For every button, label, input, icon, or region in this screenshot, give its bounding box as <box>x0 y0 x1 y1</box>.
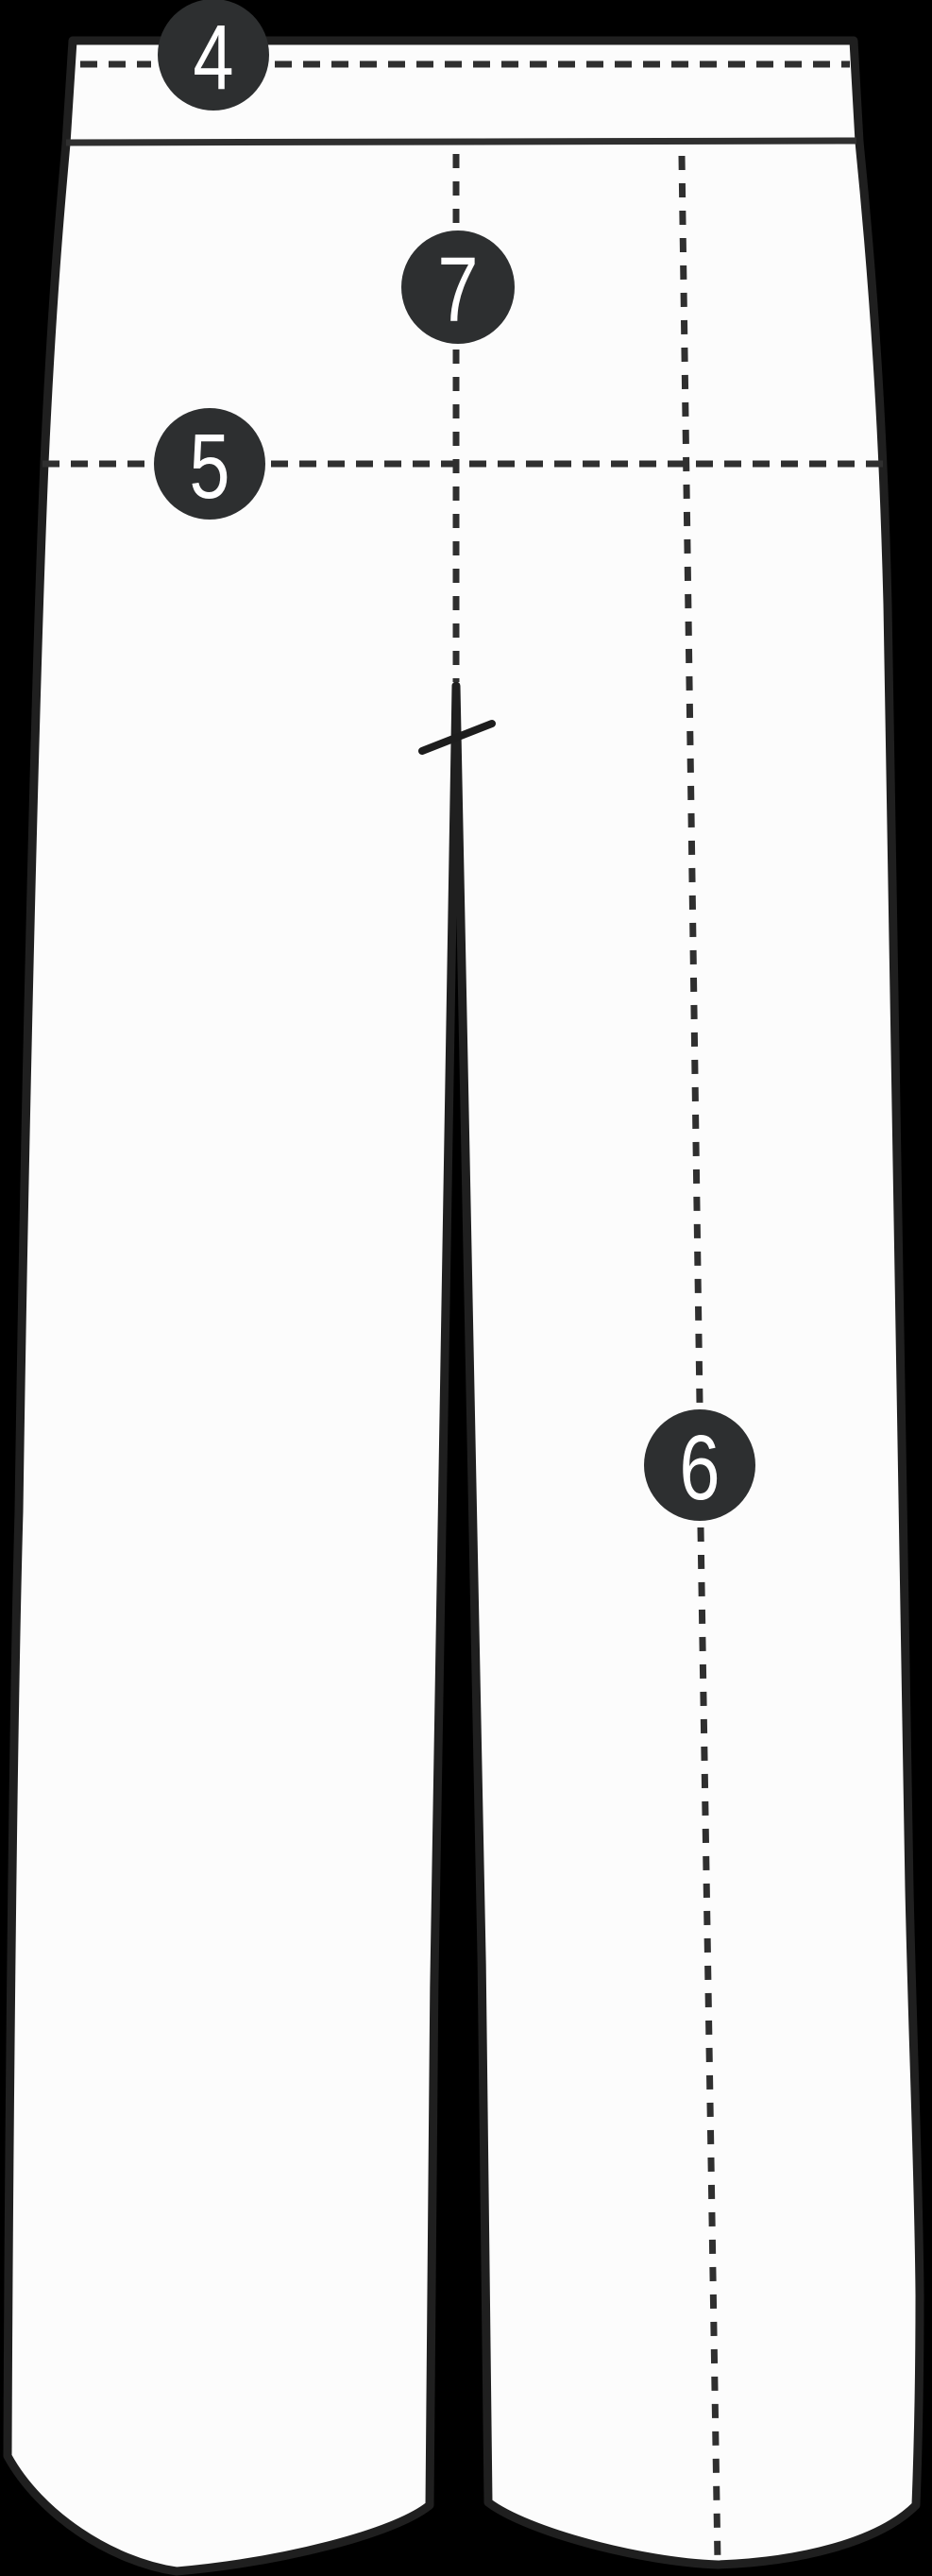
badge-4-label: 4 <box>193 6 233 109</box>
badge-5-label: 5 <box>189 415 229 518</box>
trousers-measurement-diagram: 4 5 7 6 <box>0 0 932 2576</box>
badge-7-label: 7 <box>437 238 478 341</box>
badge-4: 4 <box>158 0 269 111</box>
badge-6-label: 6 <box>679 1416 720 1519</box>
diagram-canvas: 4 5 7 6 <box>0 0 932 2576</box>
badge-4-label-wrap: 4 <box>193 6 233 109</box>
badge-5-label-wrap: 5 <box>189 415 229 518</box>
badge-5: 5 <box>154 408 265 520</box>
badge-6-label-wrap: 6 <box>679 1416 720 1519</box>
badge-6: 6 <box>644 1409 755 1521</box>
badge-7-label-wrap: 7 <box>437 238 478 341</box>
badge-7: 7 <box>401 230 515 344</box>
waistband-bottom-seam <box>66 141 856 143</box>
